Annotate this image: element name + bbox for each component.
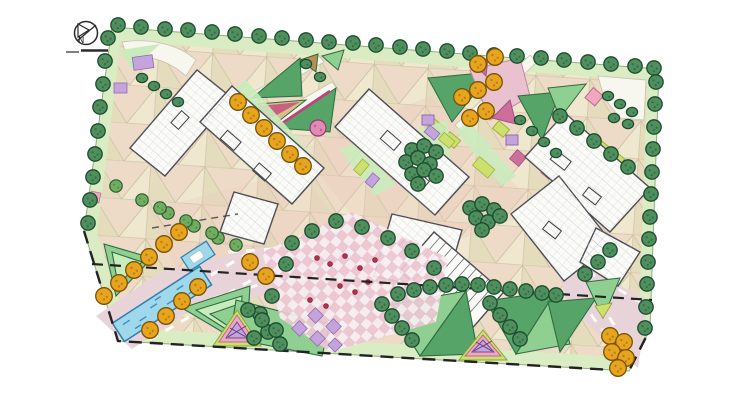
flower-trees bbox=[310, 120, 326, 136]
site-plan-page: N bbox=[0, 0, 750, 404]
flowering-tree-pinwheel bbox=[310, 120, 326, 136]
purple-planter bbox=[132, 55, 154, 71]
site-plan-canvas: N bbox=[0, 0, 750, 404]
north-label: N bbox=[78, 36, 84, 46]
